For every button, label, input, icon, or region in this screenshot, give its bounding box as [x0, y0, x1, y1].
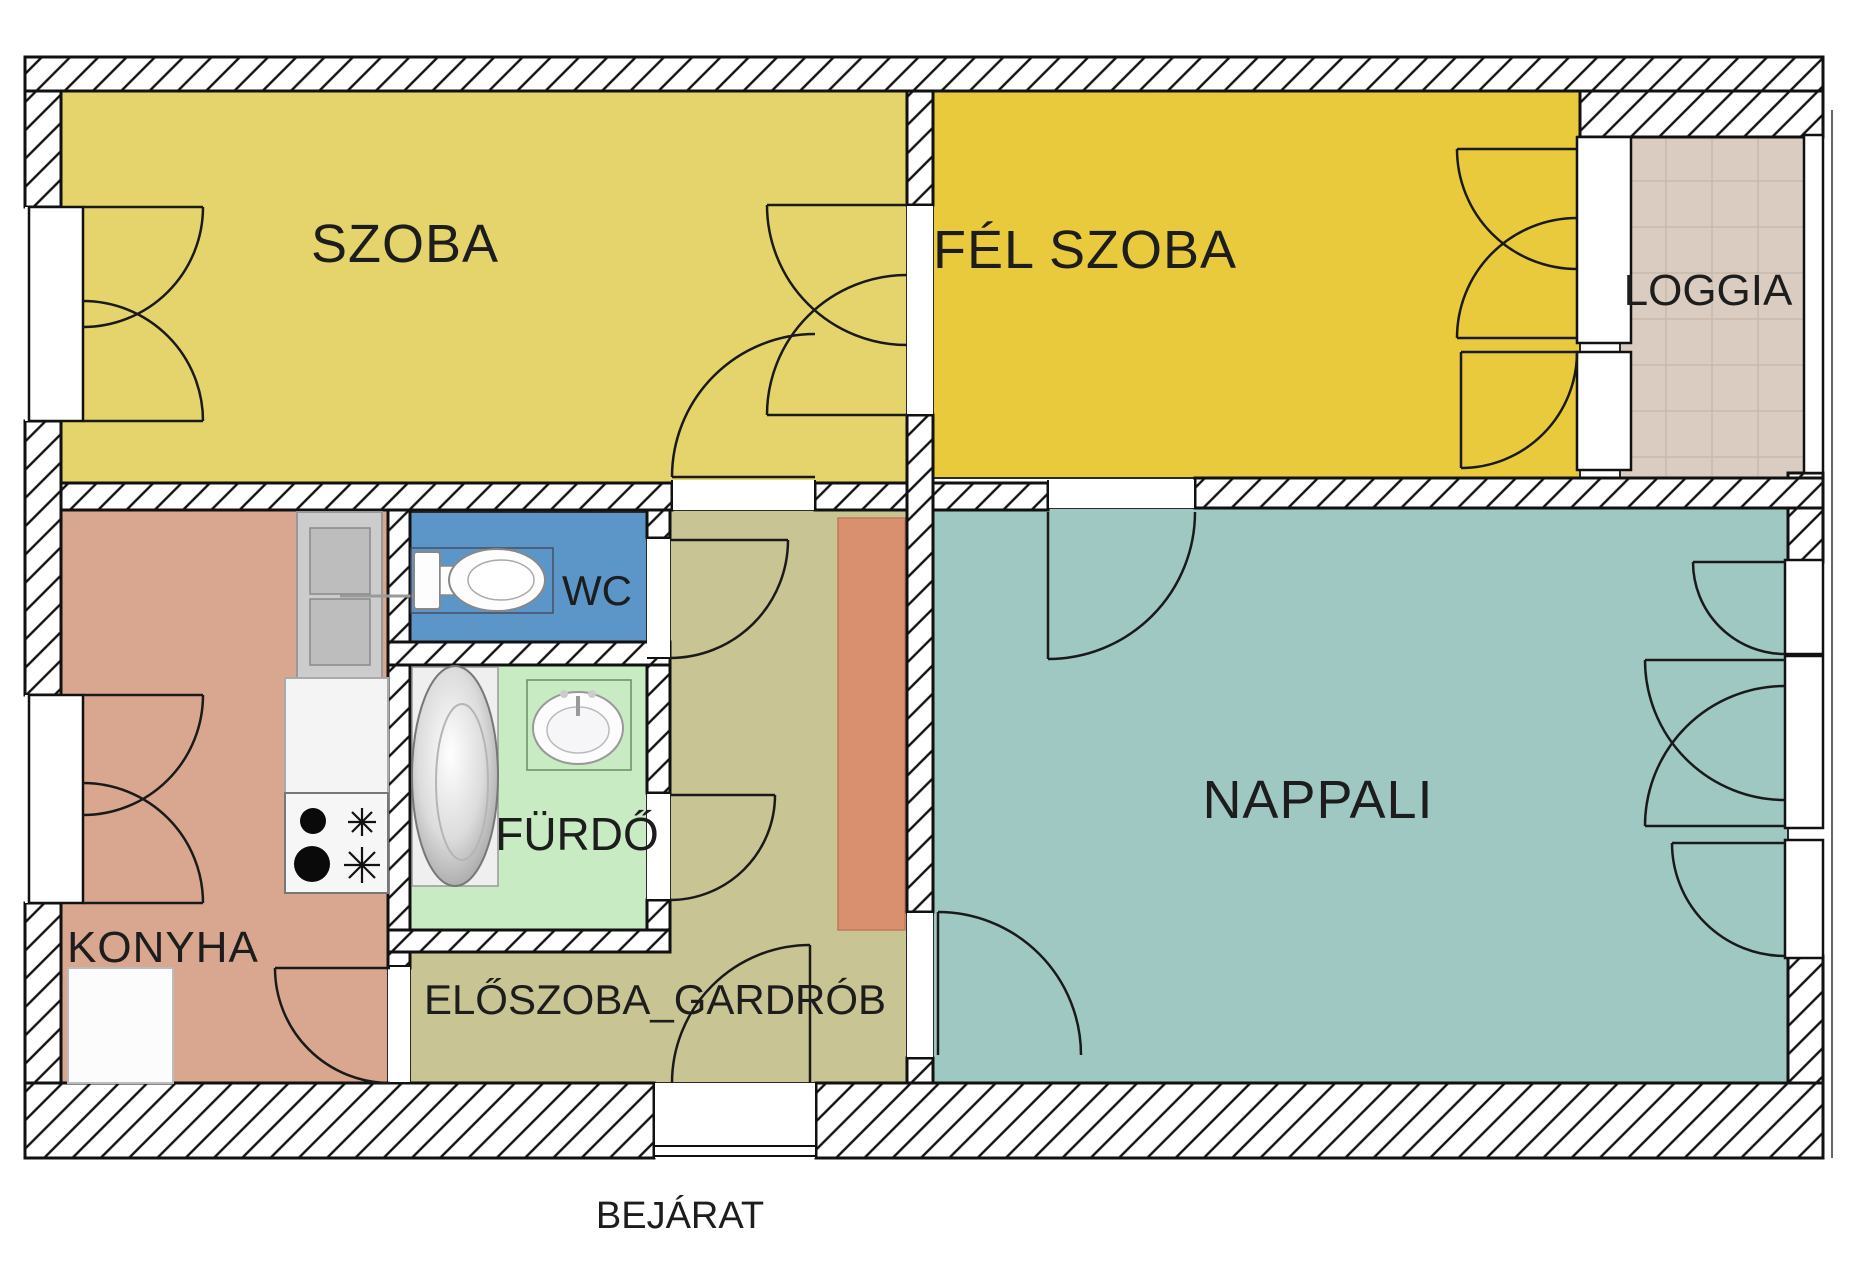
label-szoba: SZOBA [311, 214, 499, 274]
window-nappali-2 [1785, 656, 1823, 828]
doorway-szoba-felszoba [907, 205, 933, 415]
loggia-right-wall [1804, 135, 1823, 473]
label-wc: WC [562, 567, 632, 614]
floor-plan-canvas: SZOBA FÉL SZOBA LOGGIA WC FÜRDŐ NAPPALI … [0, 0, 1849, 1280]
kitchen-cabinet [68, 968, 173, 1083]
label-furdo: FÜRDŐ [495, 808, 659, 860]
label-bejarat: BEJÁRAT [596, 1194, 764, 1237]
doorway-felszoba-nappali [1048, 480, 1195, 508]
door-felszoba-loggia [1577, 352, 1631, 470]
room-szoba [61, 91, 907, 483]
window-konyha-left [29, 695, 83, 903]
floor-plan: SZOBA FÉL SZOBA LOGGIA WC FÜRDŐ NAPPALI … [0, 0, 1849, 1280]
bathtub-icon [412, 666, 498, 886]
doorway-wc [647, 538, 670, 658]
label-loggia: LOGGIA [1624, 266, 1793, 315]
label-fel-szoba: FÉL SZOBA [933, 220, 1237, 280]
label-konyha: KONYHA [67, 923, 259, 972]
door-nappali-balcony [1785, 840, 1823, 958]
doorway-hall-nappali [907, 912, 933, 1058]
window-nappali-1 [1785, 560, 1823, 654]
label-nappali: NAPPALI [1202, 770, 1433, 830]
stove-icon [285, 793, 388, 893]
label-eloszoba: ELŐSZOBA_GARDRÓB [424, 976, 886, 1023]
doorway-konyha [388, 966, 410, 1083]
window-szoba-left [29, 207, 83, 421]
doorway-szoba-hall [672, 480, 815, 510]
cabinet-block [838, 518, 905, 930]
kitchen-counter [285, 678, 388, 793]
